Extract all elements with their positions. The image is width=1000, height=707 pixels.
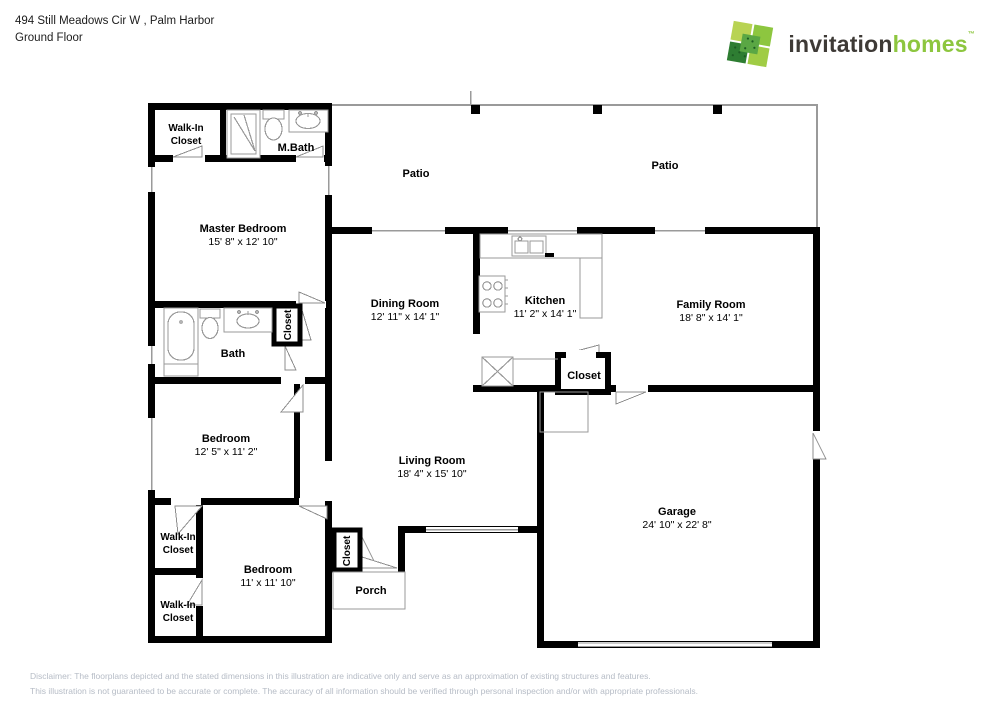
room-label-walkin-closet-2: Walk-In <box>160 600 195 611</box>
utility-area-outline <box>540 392 588 432</box>
fixtures <box>164 110 602 386</box>
room-label-walkin-closet-1: Walk-In <box>160 532 195 543</box>
door-swing-icon <box>281 385 303 412</box>
floorplan-page: 494 Still Meadows Cir W , Palm Harbor Gr… <box>0 0 1000 707</box>
room-label-master-bedroom: Master Bedroom <box>200 223 287 235</box>
room-dims-living-room: 18' 4" x 15' 10" <box>397 468 467 480</box>
kitchen-sink-fixture <box>512 236 546 256</box>
door-swing-icon <box>299 506 327 519</box>
patio-post-icon <box>471 105 480 114</box>
room-dims-kitchen: 11' 2" x 14' 1" <box>514 308 577 320</box>
shower-fixture <box>227 110 260 158</box>
door-swing-icon <box>173 146 202 157</box>
patio-post-icon <box>713 105 722 114</box>
room-dims-bedroom-1: 12' 5" x 11' 2" <box>195 446 258 458</box>
room-label-bath: Bath <box>221 348 246 360</box>
room-label-dining-room: Dining Room <box>371 298 440 310</box>
dishwasher-mark <box>545 253 554 257</box>
door-swing-icon <box>302 310 311 340</box>
disclaimer: Disclaimer: The floorplans depicted and … <box>30 669 698 699</box>
room-label-living-room: Living Room <box>399 455 466 467</box>
sink-fixture <box>289 110 328 132</box>
disclaimer-line-1: Disclaimer: The floorplans depicted and … <box>30 669 698 684</box>
room-label-patio-right: Patio <box>652 160 679 172</box>
room-dims-dining-room: 12' 11" x 14' 1" <box>371 311 440 323</box>
stove-fixture <box>479 276 508 312</box>
room-label-kitchen: Kitchen <box>525 295 566 307</box>
room-label-porch: Porch <box>355 585 386 597</box>
room-dims-bedroom-2: 11' x 11' 10" <box>240 577 295 589</box>
room-label-garage: Garage <box>658 506 696 518</box>
toilet-fixture <box>263 110 284 140</box>
room-label-family-room: Family Room <box>676 299 745 311</box>
patio-post-icon <box>593 105 602 114</box>
floorplan-drawing: Walk-In Closet M.Bath Master Bedroom 15'… <box>0 0 1000 707</box>
washer-fixture <box>482 357 558 386</box>
disclaimer-line-2: This illustration is not guaranteed to b… <box>30 684 698 699</box>
svg-text:Closet: Closet <box>163 545 194 556</box>
door-swing-icon <box>299 292 325 303</box>
room-label-patio-left: Patio <box>403 168 430 180</box>
room-dims-master-bedroom: 15' 8" x 12' 10" <box>208 236 278 248</box>
front-door-swing-icon <box>362 557 397 568</box>
svg-text:Closet: Closet <box>171 136 202 147</box>
room-label-bedroom-1: Bedroom <box>202 433 251 445</box>
room-dims-garage: 24' 10" x 22' 8" <box>642 519 712 531</box>
door-swing-icon <box>616 392 646 404</box>
bathtub-fixture <box>164 308 198 376</box>
room-label-bath-closet: Closet <box>283 309 294 340</box>
room-labels: Walk-In Closet M.Bath Master Bedroom 15'… <box>160 123 745 624</box>
room-label-walkin-closet-master: Walk-In <box>168 123 203 134</box>
room-label-bedroom-2: Bedroom <box>244 564 293 576</box>
svg-text:Closet: Closet <box>163 613 194 624</box>
room-label-entry-closet: Closet <box>342 535 353 566</box>
room-dims-family-room: 18' 8" x 14' 1" <box>679 312 743 324</box>
sink-fixture <box>224 308 272 332</box>
room-label-hall-closet: Closet <box>567 370 601 382</box>
room-label-mbath: M.Bath <box>278 142 315 154</box>
patio-outline <box>332 91 818 229</box>
toilet-fixture <box>200 309 220 339</box>
door-swing-icon <box>285 346 296 370</box>
